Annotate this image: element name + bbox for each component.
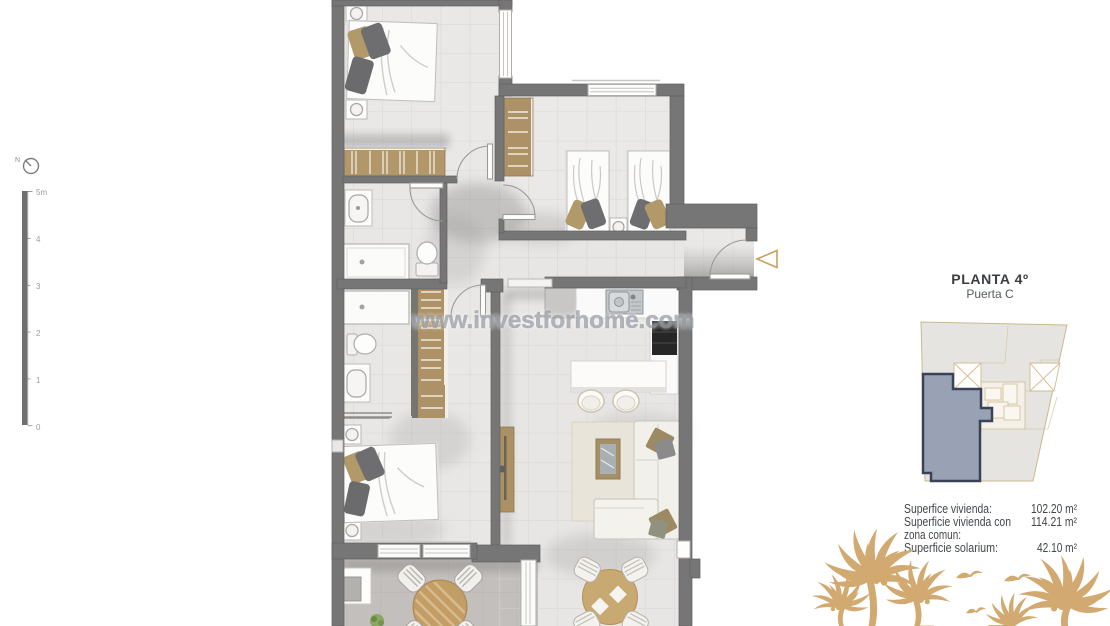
svg-text:2: 2 xyxy=(36,329,41,338)
svg-text:102.20 m²: 102.20 m² xyxy=(1031,502,1077,516)
svg-text:42.10 m²: 42.10 m² xyxy=(1037,541,1077,555)
svg-text:5m: 5m xyxy=(36,188,47,197)
svg-text:www.investforhome.com: www.investforhome.com xyxy=(410,307,694,334)
svg-text:1: 1 xyxy=(36,376,41,385)
svg-text:114.21 m²: 114.21 m² xyxy=(1031,515,1077,529)
svg-text:Superficie vivienda con: Superficie vivienda con xyxy=(904,515,1011,529)
svg-text:4: 4 xyxy=(36,235,41,244)
svg-text:Puerta C: Puerta C xyxy=(966,287,1014,301)
svg-text:Superfice vivienda:: Superfice vivienda: xyxy=(904,502,992,516)
svg-text:N: N xyxy=(15,157,20,164)
svg-text:zona comun:: zona comun: xyxy=(904,528,961,542)
svg-text:PLANTA 4º: PLANTA 4º xyxy=(951,271,1028,287)
svg-text:Superficie solarium:: Superficie solarium: xyxy=(904,541,998,555)
svg-text:3: 3 xyxy=(36,282,41,291)
svg-text:0: 0 xyxy=(36,423,41,432)
